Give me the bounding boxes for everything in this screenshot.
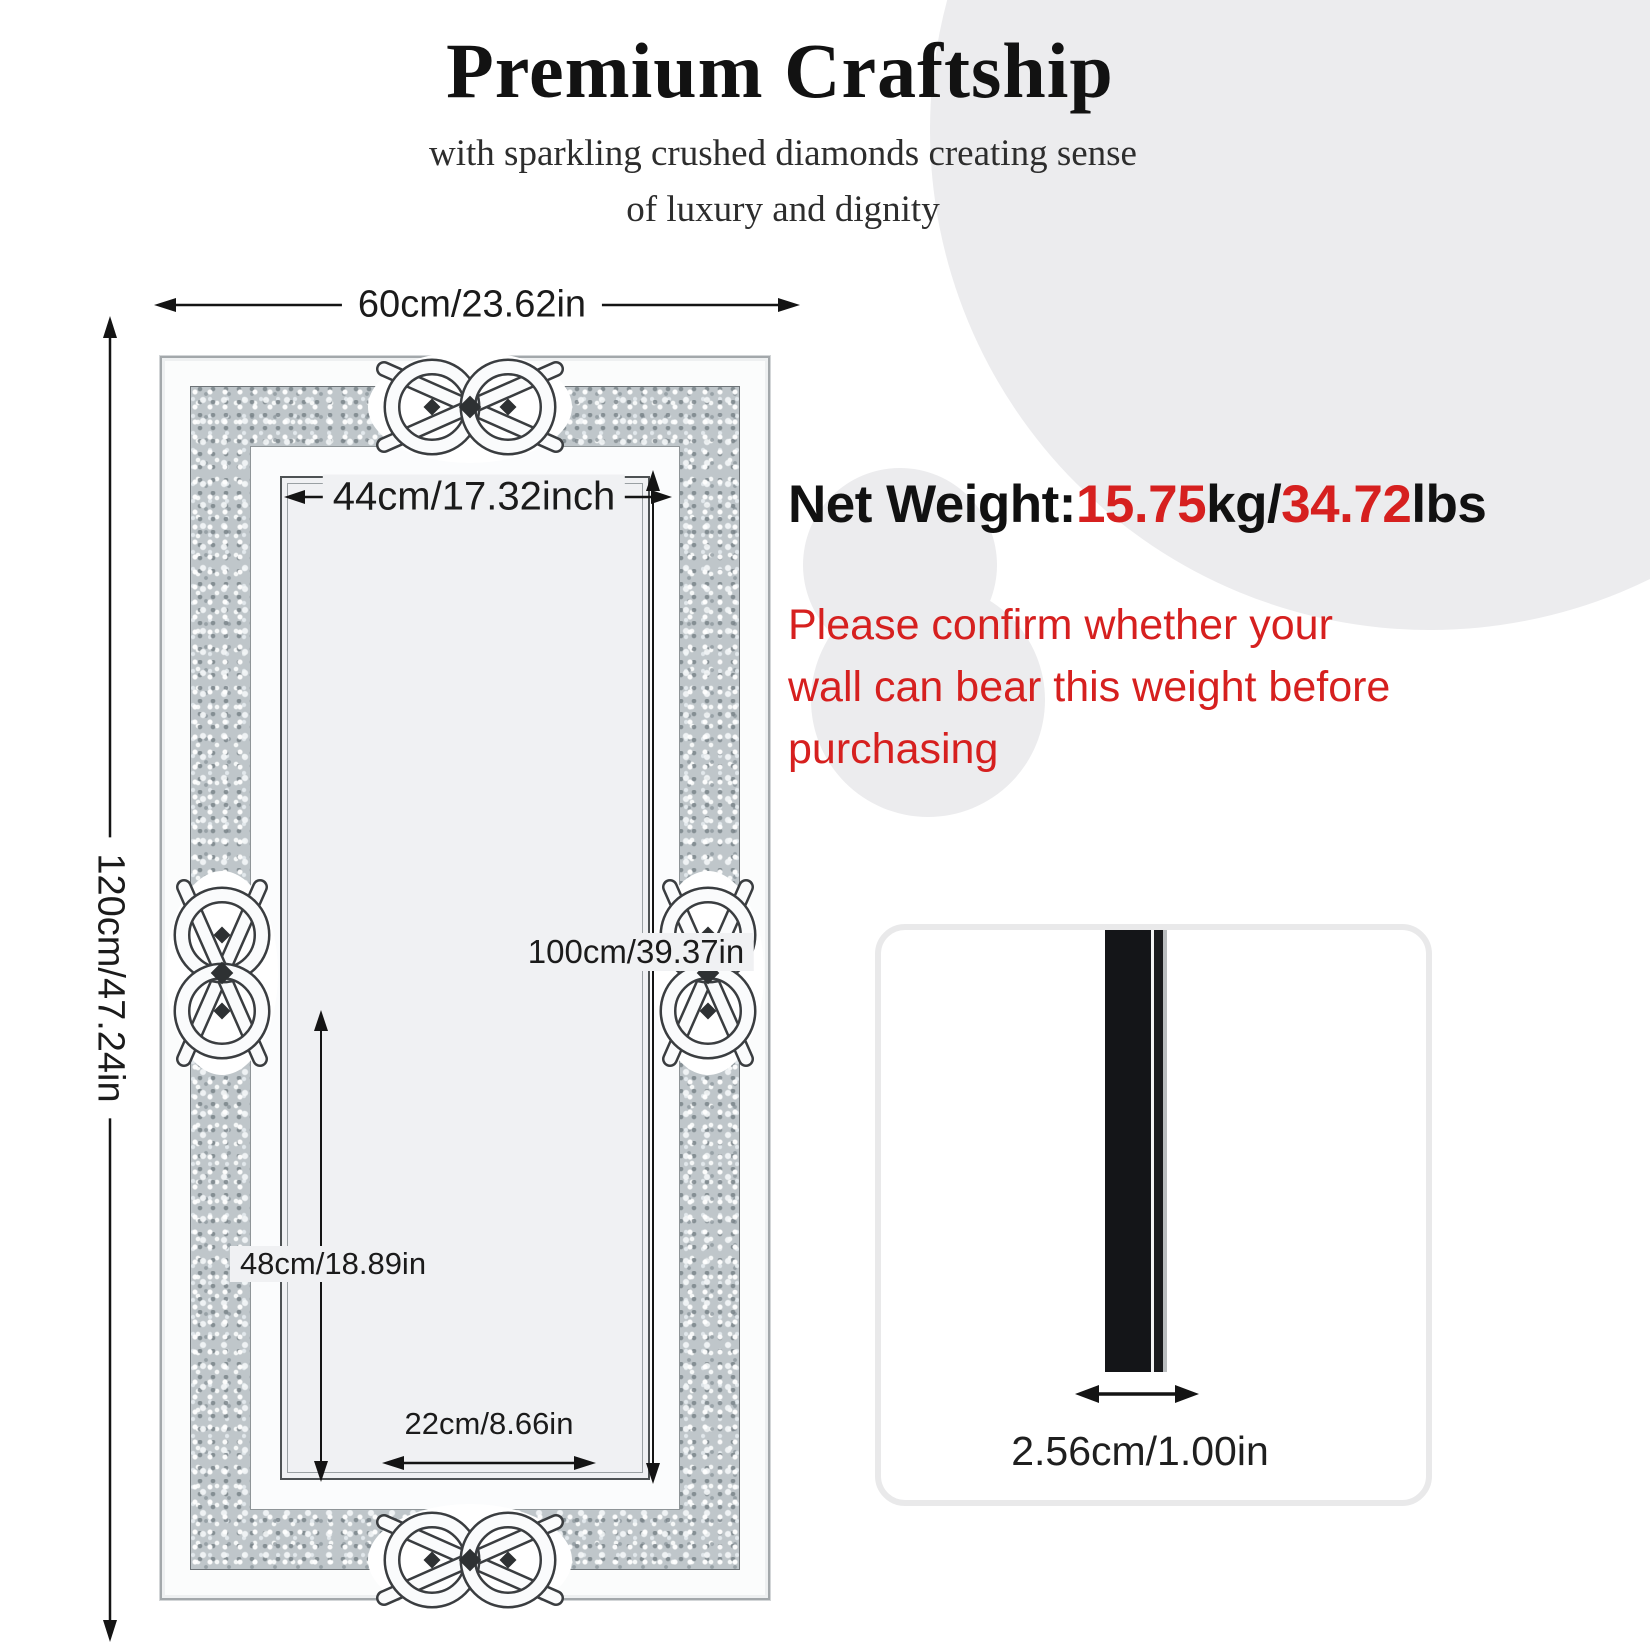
inner-height-arrow-icon xyxy=(642,468,664,1486)
mirror-face xyxy=(280,476,650,1480)
celtic-knot-top-icon xyxy=(360,347,580,467)
celtic-knot-left-icon xyxy=(162,863,282,1083)
bottom-width-arrow-icon xyxy=(380,1452,598,1474)
overall-height-label: 120cm/47.24in xyxy=(89,837,132,1118)
warning-line-1: Please confirm whether your xyxy=(788,594,1390,656)
weight-warning: Please confirm whether your wall can bea… xyxy=(788,594,1390,780)
warning-line-2: wall can bear this weight before xyxy=(788,656,1390,718)
subtitle-line-2: of luxury and dignity xyxy=(0,188,1566,231)
overall-width-label: 60cm/23.62in xyxy=(342,284,602,327)
celtic-knot-bottom-icon xyxy=(360,1500,580,1620)
thickness-arrow-icon xyxy=(1071,1380,1203,1408)
inner-height-label: 100cm/39.37in xyxy=(518,933,754,971)
net-weight-kg-value: 15.75 xyxy=(1076,475,1206,534)
net-weight-lbs-value: 34.72 xyxy=(1281,475,1411,534)
net-weight-kg-unit: kg/ xyxy=(1206,475,1281,534)
warning-line-3: purchasing xyxy=(788,718,1390,780)
lower-height-label: 48cm/18.89in xyxy=(230,1246,436,1282)
celtic-knot-right-icon xyxy=(648,863,768,1083)
page-title: Premium Craftship xyxy=(0,26,1560,116)
inner-width-label: 44cm/17.32inch xyxy=(323,475,625,520)
product-infographic: Premium Craftship with sparkling crushed… xyxy=(0,0,1650,1650)
net-weight-lbs-unit: lbs xyxy=(1411,475,1486,534)
mirror-side-view xyxy=(1105,930,1167,1372)
subtitle-line-1: with sparkling crushed diamonds creating… xyxy=(0,132,1566,175)
bottom-width-label: 22cm/8.66in xyxy=(405,1406,574,1442)
thickness-label: 2.56cm/1.00in xyxy=(1011,1428,1269,1475)
net-weight-line: Net Weight:15.75kg/34.72lbs xyxy=(788,474,1486,535)
net-weight-label: Net Weight: xyxy=(788,475,1076,534)
